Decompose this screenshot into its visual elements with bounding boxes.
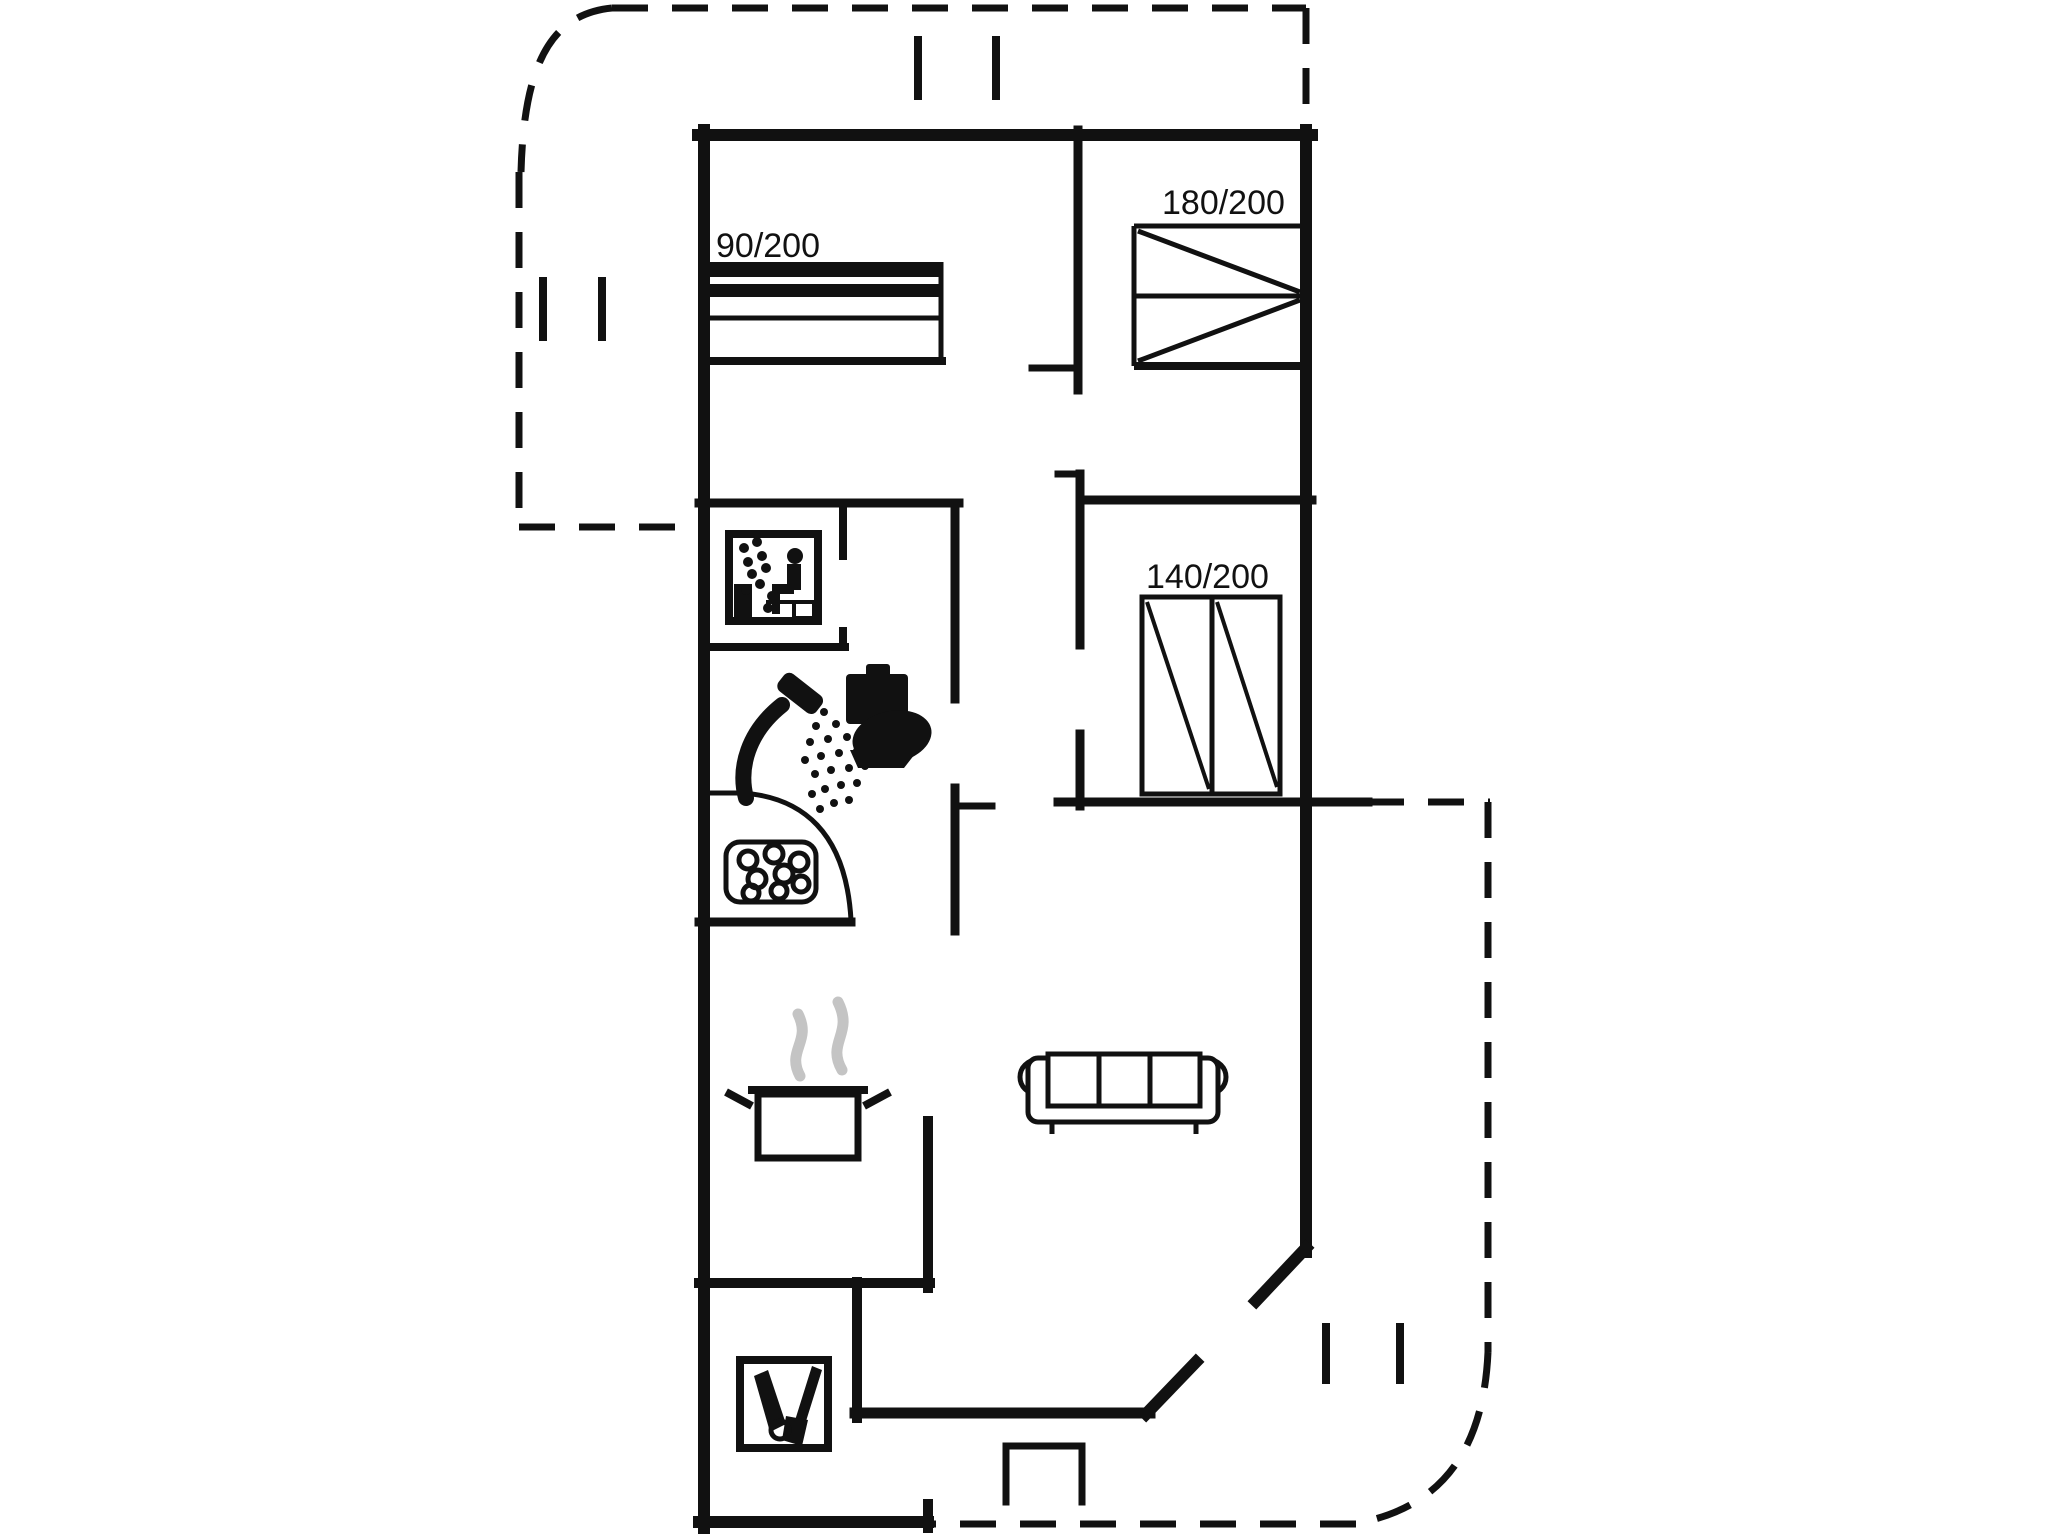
stove-pot-icon <box>726 1002 890 1158</box>
bed-180x200: 180/200 <box>1134 184 1306 366</box>
pot-body <box>758 1094 858 1158</box>
entrance-step-outline <box>1006 1446 1082 1502</box>
bed-size-label: 90/200 <box>716 227 820 265</box>
entrance-step <box>1006 1446 1082 1502</box>
whirlpool-bubbles <box>739 845 809 901</box>
pot-handle <box>726 1092 752 1106</box>
bed-duvet-band <box>704 284 942 297</box>
sauna-person <box>766 548 816 618</box>
bed-duvet-diagonal <box>1217 602 1277 787</box>
toilet-base <box>850 750 918 768</box>
sauna-icon <box>729 534 818 621</box>
wall-east-chamfer-upper <box>1256 1248 1306 1301</box>
shower-handle <box>743 705 782 798</box>
cleaning-equipment-icon <box>740 1360 828 1448</box>
floor-plan-page: 90/200 180/200 140/200 <box>0 0 2048 1536</box>
bed-90x200: 90/200 <box>704 227 946 361</box>
sofa-cushions <box>1048 1054 1200 1106</box>
whirlpool-icon <box>726 842 816 902</box>
toilet-icon <box>846 664 937 771</box>
pot-handle <box>864 1092 890 1106</box>
steam-wave <box>796 1014 803 1076</box>
floor-plan-svg: 90/200 180/200 140/200 <box>0 0 2048 1536</box>
steam-wave <box>837 1002 843 1070</box>
wall-chamfer-lower <box>1146 1362 1196 1414</box>
exterior-walls <box>698 130 1368 1528</box>
bed-size-label: 140/200 <box>1146 558 1269 596</box>
bed-duvet-diagonal <box>1147 602 1209 789</box>
bed-duvet-diagonal <box>1138 300 1300 361</box>
terrace-top-left-corner <box>521 8 612 172</box>
bed-140x200: 140/200 <box>1142 558 1280 794</box>
sofa <box>1020 1054 1226 1134</box>
terrace-bottom-right-corner <box>1358 1352 1488 1523</box>
bed-size-label: 180/200 <box>1162 184 1285 222</box>
bed-duvet-diagonal <box>1138 231 1300 292</box>
